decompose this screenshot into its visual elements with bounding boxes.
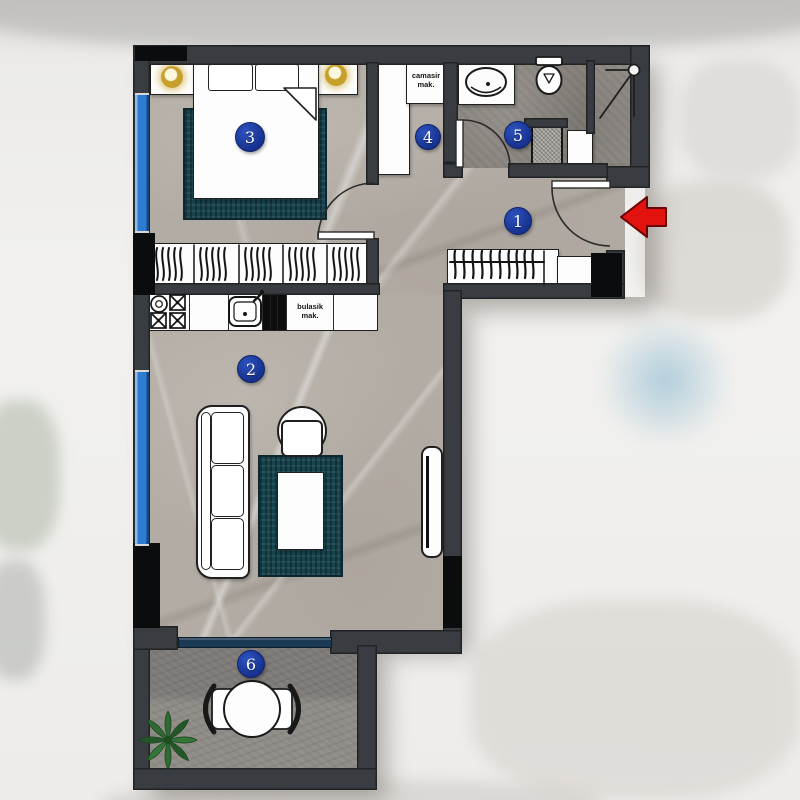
counter-segment [189,294,229,330]
wall [133,283,380,295]
tv-screen [426,456,429,548]
bathroom-cabinet [567,130,593,164]
floor-plan-canvas: camasir mak. bulasik mak. [0,0,800,800]
bed-pillow [255,64,299,91]
room-badge-entrance: 1 [504,207,532,235]
wall-shaft [133,233,155,295]
wall [606,166,650,188]
wall-shaft [443,556,462,628]
wall [443,163,463,178]
room-badge-bathroom: 5 [504,121,532,149]
dishwasher-label: bulasik mak. [289,303,331,320]
washing-machine-label: camasir mak. [407,72,445,89]
room-badge-bedroom: 3 [235,122,265,152]
counter-segment [333,294,377,330]
wall [366,62,379,185]
bed-pillow [208,64,253,91]
bg-tree-left [0,400,60,550]
floor-shower-zone [595,60,635,163]
table-lamp-icon [161,66,183,88]
bg-tree-left-low [0,560,45,680]
balcony-sliding-door [178,637,332,648]
dishwasher: bulasik mak. [286,294,334,330]
wall [630,45,650,182]
washbasin-counter [458,62,515,105]
bedroom-window [135,93,149,233]
armchair-seat [281,420,323,457]
bg-top-haze [0,0,800,50]
bedroom-wardrobe [148,243,372,287]
living-room-window [135,370,149,546]
room-badge-living-room: 2 [237,355,265,383]
sofa-backrest [201,412,211,570]
wall [443,62,458,163]
oven-unit [262,294,286,330]
bg-building-right [640,180,790,320]
washing-machine [531,126,563,168]
sofa-cushion [211,518,244,570]
bg-building-bottom-right [470,600,800,800]
kitchen-sink [228,294,262,330]
wall [330,630,462,654]
wall-shaft [133,543,160,628]
table-lamp-icon [325,64,347,86]
sofa-cushion [211,412,244,464]
wall [524,118,568,128]
bg-pool [590,320,740,440]
bg-building-top-right [680,60,800,180]
kitchen-counter: bulasik mak. [148,293,378,331]
stove [149,294,189,330]
room-badge-hallway: 4 [415,124,441,150]
wall-shower-divider [586,60,595,134]
room-badge-balcony: 6 [237,650,265,678]
tv-unit [421,446,443,558]
coffee-table [277,472,324,550]
sofa-cushion [211,465,244,517]
wall-shaft [135,46,187,61]
wall [133,768,377,790]
sofa [196,405,250,579]
wall-shaft [591,253,622,297]
wall [508,163,608,178]
wall [133,626,178,650]
wall [133,45,650,65]
